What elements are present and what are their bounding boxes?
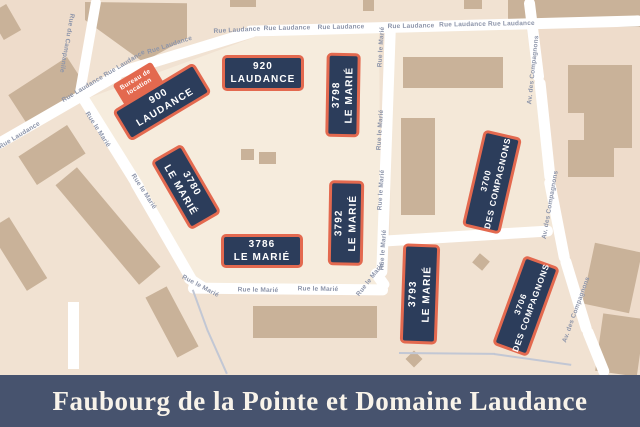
small-structure bbox=[472, 253, 490, 271]
building-number: 3792 bbox=[332, 194, 346, 251]
building-label: 920 LAUDANCE bbox=[231, 60, 296, 87]
unlabeled-building bbox=[464, 0, 482, 9]
footpath bbox=[207, 330, 227, 374]
building-label: 3792 LE MARIÉ bbox=[332, 194, 360, 251]
street-label-rue-laudance: Rue Laudance bbox=[264, 25, 311, 32]
building-street: LE MARIÉ bbox=[234, 251, 291, 265]
footpath bbox=[192, 289, 208, 331]
unlabeled-building bbox=[403, 57, 503, 88]
unlabeled-building bbox=[401, 118, 435, 215]
street-label-rue-laudance: Rue Laudance bbox=[388, 23, 435, 30]
building-street: LE MARIÉ bbox=[419, 266, 434, 323]
road-strip bbox=[68, 302, 79, 369]
unlabeled-building bbox=[568, 140, 614, 177]
building-label: 3798 LE MARIÉ bbox=[329, 66, 357, 123]
unlabeled-building bbox=[145, 286, 198, 357]
building-920-laudance: 920 LAUDANCE bbox=[222, 55, 304, 91]
street-label-rue-le-marie: Rue le Marié bbox=[238, 287, 279, 294]
small-structure bbox=[259, 152, 276, 164]
building-street: LE MARIÉ bbox=[343, 67, 357, 124]
title-banner: Faubourg de la Pointe et Domaine Laudanc… bbox=[0, 375, 640, 427]
building-label: 3793 LE MARIÉ bbox=[406, 265, 435, 323]
building-label: 3786 LE MARIÉ bbox=[234, 238, 291, 265]
building-street: LAUDANCE bbox=[231, 73, 296, 87]
footpath bbox=[494, 353, 571, 365]
map-canvas: Rue Laudance Rue Laudance Rue Laudance R… bbox=[0, 0, 640, 427]
building-3792-le-marie: 3792 LE MARIÉ bbox=[328, 180, 364, 266]
small-structure bbox=[241, 149, 254, 160]
building-3793-le-marie: 3793 LE MARIÉ bbox=[400, 243, 440, 344]
street-label-rue-le-marie: Rue le Marié bbox=[298, 286, 339, 293]
unlabeled-building bbox=[0, 217, 47, 291]
unlabeled-building bbox=[230, 0, 256, 7]
unlabeled-building bbox=[253, 306, 377, 338]
building-number: 920 bbox=[231, 60, 296, 74]
building-number: 3786 bbox=[234, 238, 291, 252]
street-label-rue-laudance: Rue Laudance bbox=[318, 24, 365, 31]
building-label: 3706 DES COMPAGNONS bbox=[499, 258, 552, 353]
building-3706-des-compagnons: 3706 DES COMPAGNONS bbox=[492, 255, 560, 357]
building-number: 3798 bbox=[329, 66, 343, 123]
building-street: LE MARIÉ bbox=[346, 195, 360, 252]
page-title: Faubourg de la Pointe et Domaine Laudanc… bbox=[52, 386, 587, 417]
building-3798-le-marie: 3798 LE MARIÉ bbox=[325, 53, 360, 138]
building-3786-le-marie: 3786 LE MARIÉ bbox=[221, 234, 303, 268]
unlabeled-building bbox=[363, 0, 374, 11]
